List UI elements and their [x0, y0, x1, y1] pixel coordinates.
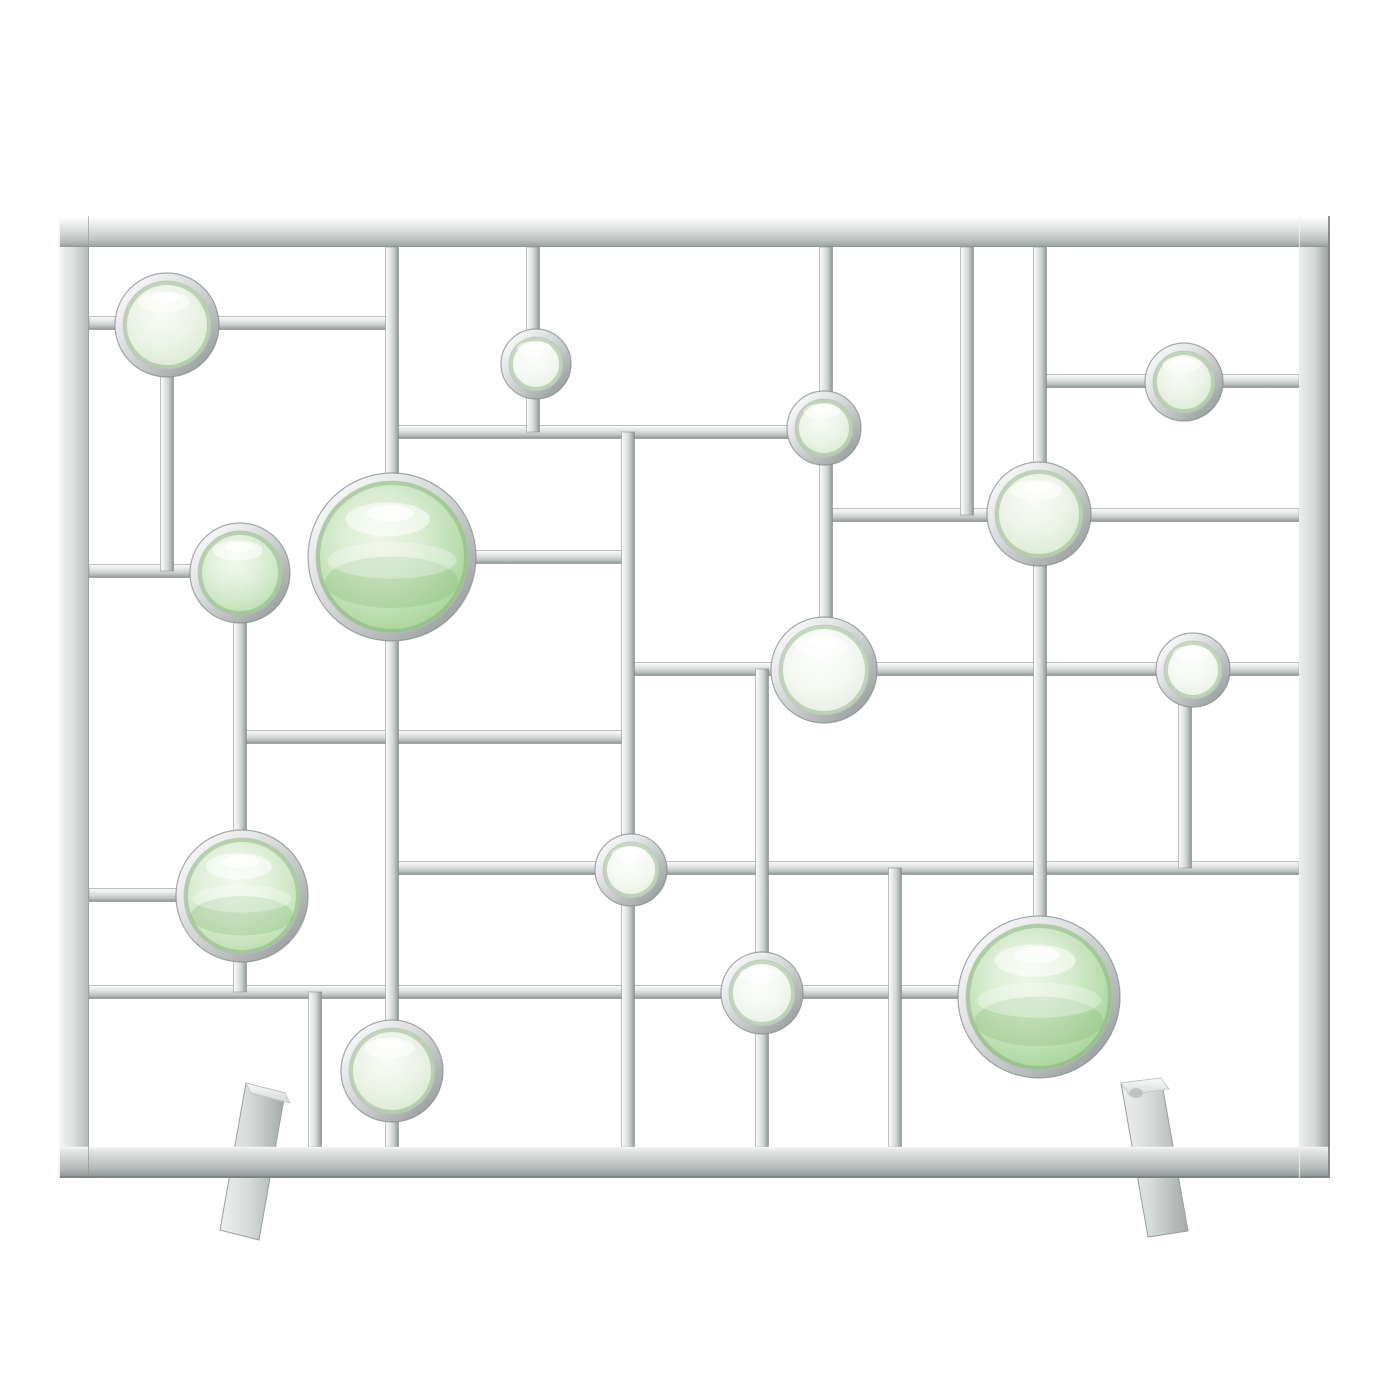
fireplace-screen-photo [0, 0, 1400, 1400]
glass-lens [115, 273, 219, 377]
glass-lens [1145, 343, 1223, 421]
grid-bar-horizontal [392, 862, 1299, 875]
grid-bar-vertical [756, 669, 769, 1147]
glass-lens [771, 617, 877, 723]
grid-bar-horizontal [240, 731, 628, 744]
glass-lens [958, 916, 1120, 1078]
glass-lens [1156, 633, 1230, 707]
glass-lens [987, 462, 1091, 566]
glass-lens [721, 952, 803, 1034]
grid-bar-vertical [889, 868, 902, 1147]
frame-right [1299, 216, 1330, 1178]
maker-stamp [1129, 1088, 1143, 1098]
glass-lens [176, 830, 308, 962]
grid-bar-vertical [961, 247, 974, 515]
frame-bottom [58, 1147, 1330, 1178]
glass-lens [308, 473, 476, 641]
grid-bar-vertical [1034, 247, 1047, 997]
frame-left [58, 216, 89, 1178]
glass-lens [595, 834, 667, 906]
glass-lens [787, 391, 861, 465]
grid-bar-vertical [622, 432, 635, 1147]
frame-top [58, 216, 1330, 247]
glass-lens [341, 1020, 443, 1122]
product-photo-canvas [0, 0, 1400, 1400]
grid-bar-horizontal [89, 986, 965, 999]
glass-lens [190, 523, 290, 623]
grid-bar-horizontal [391, 426, 824, 439]
grid-bar-vertical [309, 992, 322, 1147]
grid-bar-vertical [386, 247, 399, 1147]
glass-lens [501, 329, 571, 399]
